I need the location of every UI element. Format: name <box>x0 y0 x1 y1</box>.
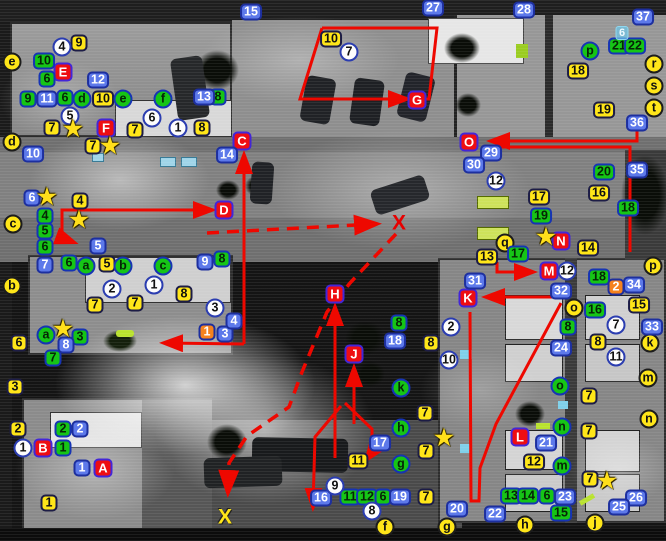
marker-ysq-7[interactable]: 7 <box>127 122 144 139</box>
marker-bsq-12[interactable]: 12 <box>87 72 109 89</box>
marker-bsq-4[interactable]: 4 <box>226 313 243 330</box>
marker-ysq-17[interactable]: 17 <box>528 189 550 206</box>
marker-bsq-10[interactable]: 10 <box>22 146 44 163</box>
marker-gsq-19[interactable]: 19 <box>530 208 552 225</box>
x-mark[interactable]: X <box>392 213 406 234</box>
marker-gsq-9[interactable]: 9 <box>20 91 37 108</box>
marker-gsq-8[interactable]: 8 <box>214 251 231 268</box>
marker-red-K[interactable]: K <box>459 289 478 308</box>
marker-ycir-f[interactable]: f <box>376 518 395 537</box>
marker-bsq-19[interactable]: 19 <box>389 489 411 506</box>
star-icon[interactable]: ★ <box>53 318 73 340</box>
marker-ysq-7[interactable]: 7 <box>581 388 598 405</box>
marker-gcir-g[interactable]: g <box>392 455 411 474</box>
marker-ysq-10[interactable]: 10 <box>92 91 114 108</box>
marker-gcir-a[interactable]: a <box>77 257 96 276</box>
marker-ycir-g[interactable]: g <box>438 518 457 537</box>
marker-ycir-c[interactable]: c <box>4 215 23 234</box>
marker-csq-6[interactable]: 6 <box>616 26 629 40</box>
marker-wcir-1[interactable]: 1 <box>14 439 33 458</box>
marker-gcir-m[interactable]: m <box>553 457 572 476</box>
marker-bsq-23[interactable]: 23 <box>554 489 576 506</box>
marker-wcir-7[interactable]: 7 <box>607 316 626 335</box>
marker-gsq-6[interactable]: 6 <box>57 90 74 107</box>
marker-red-J[interactable]: J <box>345 345 364 364</box>
marker-ycir-n[interactable]: n <box>640 410 659 429</box>
marker-ysq-18[interactable]: 18 <box>567 63 589 80</box>
marker-ycir-p[interactable]: p <box>644 257 663 276</box>
marker-gsq-1[interactable]: 1 <box>55 440 72 457</box>
marker-bsq-21[interactable]: 21 <box>535 435 557 452</box>
marker-ysq-8[interactable]: 8 <box>194 120 211 137</box>
marker-bsq-14[interactable]: 14 <box>216 147 238 164</box>
marker-bsq-31[interactable]: 31 <box>464 273 486 290</box>
marker-gcir-n[interactable]: n <box>553 418 572 437</box>
marker-ysq-7[interactable]: 7 <box>44 120 61 137</box>
marker-gsq-2[interactable]: 2 <box>55 421 72 438</box>
marker-bsq-17[interactable]: 17 <box>369 435 391 452</box>
marker-wcir-8[interactable]: 8 <box>363 502 382 521</box>
marker-wcir-10[interactable]: 10 <box>440 351 459 370</box>
marker-ysq-7[interactable]: 7 <box>127 295 144 312</box>
marker-wcir-11[interactable]: 11 <box>607 348 626 367</box>
marker-wcir-4[interactable]: 4 <box>53 38 72 57</box>
marker-bsq-28[interactable]: 28 <box>513 2 535 19</box>
marker-bsq-15[interactable]: 15 <box>240 4 262 21</box>
marker-red-M[interactable]: M <box>540 262 559 281</box>
tactical-map: ABCDEFGHJKLMNO91077810181974171614135637… <box>0 0 666 541</box>
marker-layer: ABCDEFGHJKLMNO91077810181974171614135637… <box>0 0 666 541</box>
marker-bsq-30[interactable]: 30 <box>463 157 485 174</box>
marker-ycir-m[interactable]: m <box>639 369 658 388</box>
marker-ycir-o[interactable]: o <box>565 299 584 318</box>
marker-ysq-7[interactable]: 7 <box>582 471 599 488</box>
marker-gsq-22[interactable]: 22 <box>624 38 646 55</box>
marker-gsq-14[interactable]: 14 <box>517 488 539 505</box>
marker-gcir-o[interactable]: o <box>551 377 570 396</box>
marker-ysq-14[interactable]: 14 <box>577 240 599 257</box>
marker-ysq-7[interactable]: 7 <box>87 297 104 314</box>
marker-ycir-b[interactable]: b <box>3 277 22 296</box>
marker-ysq-8[interactable]: 8 <box>176 286 193 303</box>
marker-bsq-7[interactable]: 7 <box>37 257 54 274</box>
marker-ycir-t[interactable]: t <box>645 99 664 118</box>
x-mark[interactable]: X <box>218 507 232 528</box>
marker-gcir-b[interactable]: b <box>114 257 133 276</box>
marker-gcir-p[interactable]: p <box>581 42 600 61</box>
marker-red-H[interactable]: H <box>326 285 345 304</box>
marker-ysq-19[interactable]: 19 <box>593 102 615 119</box>
marker-bsq-37[interactable]: 37 <box>632 9 654 26</box>
marker-bsq-22[interactable]: 22 <box>484 506 506 523</box>
marker-gsq-16[interactable]: 16 <box>584 302 606 319</box>
marker-ycir-r[interactable]: r <box>645 55 664 74</box>
marker-ysq-7[interactable]: 7 <box>417 405 434 422</box>
marker-wcir-1[interactable]: 1 <box>169 119 188 138</box>
marker-osq-1[interactable]: 1 <box>199 324 216 341</box>
marker-red-L[interactable]: L <box>511 428 530 447</box>
marker-ysq-1[interactable]: 1 <box>41 495 58 512</box>
marker-bsq-13[interactable]: 13 <box>193 89 215 106</box>
marker-wcir-7[interactable]: 7 <box>340 43 359 62</box>
marker-ysq-7[interactable]: 7 <box>418 443 435 460</box>
marker-bsq-18[interactable]: 18 <box>384 333 406 350</box>
marker-red-G[interactable]: G <box>408 91 427 110</box>
marker-wcir-3[interactable]: 3 <box>206 299 225 318</box>
marker-ysq-7[interactable]: 7 <box>581 423 598 440</box>
marker-gcir-k[interactable]: k <box>392 379 411 398</box>
marker-ycir-h[interactable]: h <box>516 516 535 535</box>
marker-bsq-32[interactable]: 32 <box>550 283 572 300</box>
marker-wcir-2[interactable]: 2 <box>442 318 461 337</box>
marker-red-A[interactable]: A <box>94 459 113 478</box>
marker-red-D[interactable]: D <box>215 201 234 220</box>
marker-gsq-10[interactable]: 10 <box>33 53 55 70</box>
marker-gcir-f[interactable]: f <box>154 90 173 109</box>
marker-gsq-17[interactable]: 17 <box>507 246 529 263</box>
marker-bsq-35[interactable]: 35 <box>626 162 648 179</box>
marker-ysq-9[interactable]: 9 <box>71 35 88 52</box>
marker-gsq-6[interactable]: 6 <box>61 255 78 272</box>
marker-gsq-8[interactable]: 8 <box>560 319 577 336</box>
marker-gsq-18[interactable]: 18 <box>617 200 639 217</box>
marker-red-O[interactable]: O <box>460 133 479 152</box>
marker-red-E[interactable]: E <box>54 63 73 82</box>
marker-gsq-6[interactable]: 6 <box>37 239 54 256</box>
star-icon[interactable]: ★ <box>63 118 83 140</box>
marker-gcir-h[interactable]: h <box>392 419 411 438</box>
marker-gcir-c[interactable]: c <box>154 257 173 276</box>
marker-ysq-8[interactable]: 8 <box>590 334 607 351</box>
marker-bsq-9[interactable]: 9 <box>197 254 214 271</box>
marker-bsq-33[interactable]: 33 <box>641 319 663 336</box>
star-icon[interactable]: ★ <box>69 209 89 231</box>
marker-ysq-6[interactable]: 6 <box>11 335 28 352</box>
marker-ysq-7[interactable]: 7 <box>85 138 102 155</box>
marker-gsq-6[interactable]: 6 <box>539 488 556 505</box>
marker-gsq-8[interactable]: 8 <box>391 315 408 332</box>
marker-ycir-k[interactable]: k <box>641 334 660 353</box>
marker-gcir-e[interactable]: e <box>114 90 133 109</box>
marker-bsq-24[interactable]: 24 <box>550 340 572 357</box>
marker-osq-2[interactable]: 2 <box>608 279 625 296</box>
marker-ysq-11[interactable]: 11 <box>347 453 368 470</box>
marker-ysq-15[interactable]: 15 <box>628 297 650 314</box>
marker-ycir-e[interactable]: e <box>3 53 22 72</box>
marker-wcir-12[interactable]: 12 <box>558 262 577 281</box>
marker-ysq-13[interactable]: 13 <box>476 249 498 266</box>
marker-gsq-6[interactable]: 6 <box>39 71 56 88</box>
marker-bsq-25[interactable]: 25 <box>608 499 630 516</box>
marker-wcir-9[interactable]: 9 <box>326 477 345 496</box>
marker-wcir-1[interactable]: 1 <box>145 276 164 295</box>
marker-wcir-2[interactable]: 2 <box>103 280 122 299</box>
marker-wcir-6[interactable]: 6 <box>143 109 162 128</box>
marker-ysq-8[interactable]: 8 <box>423 335 440 352</box>
marker-bsq-27[interactable]: 27 <box>422 0 444 17</box>
marker-ysq-2[interactable]: 2 <box>10 421 27 438</box>
star-icon[interactable]: ★ <box>536 226 556 248</box>
marker-bsq-20[interactable]: 20 <box>446 501 468 518</box>
marker-bsq-36[interactable]: 36 <box>626 115 648 132</box>
marker-gsq-20[interactable]: 20 <box>593 164 615 181</box>
marker-bsq-5[interactable]: 5 <box>90 238 107 255</box>
marker-ysq-3[interactable]: 3 <box>7 379 24 396</box>
star-icon[interactable]: ★ <box>597 470 617 492</box>
marker-ycir-d[interactable]: d <box>3 133 22 152</box>
marker-ycir-s[interactable]: s <box>645 77 664 96</box>
marker-ysq-7[interactable]: 7 <box>418 489 435 506</box>
marker-ysq-10[interactable]: 10 <box>320 31 342 48</box>
marker-wcir-12[interactable]: 12 <box>487 172 506 191</box>
marker-bsq-34[interactable]: 34 <box>623 277 645 294</box>
star-icon[interactable]: ★ <box>37 186 57 208</box>
marker-ycir-j[interactable]: j <box>586 514 605 533</box>
marker-bsq-2[interactable]: 2 <box>72 421 89 438</box>
marker-gsq-15[interactable]: 15 <box>550 505 572 522</box>
marker-bsq-1[interactable]: 1 <box>74 460 91 477</box>
star-icon[interactable]: ★ <box>434 427 454 449</box>
marker-gsq-5[interactable]: 5 <box>37 223 54 240</box>
marker-gcir-d[interactable]: d <box>73 90 92 109</box>
marker-bsq-11[interactable]: 11 <box>36 91 57 108</box>
marker-ysq-16[interactable]: 16 <box>588 185 610 202</box>
marker-red-B[interactable]: B <box>34 439 53 458</box>
star-icon[interactable]: ★ <box>100 135 120 157</box>
marker-ysq-12[interactable]: 12 <box>523 454 545 471</box>
